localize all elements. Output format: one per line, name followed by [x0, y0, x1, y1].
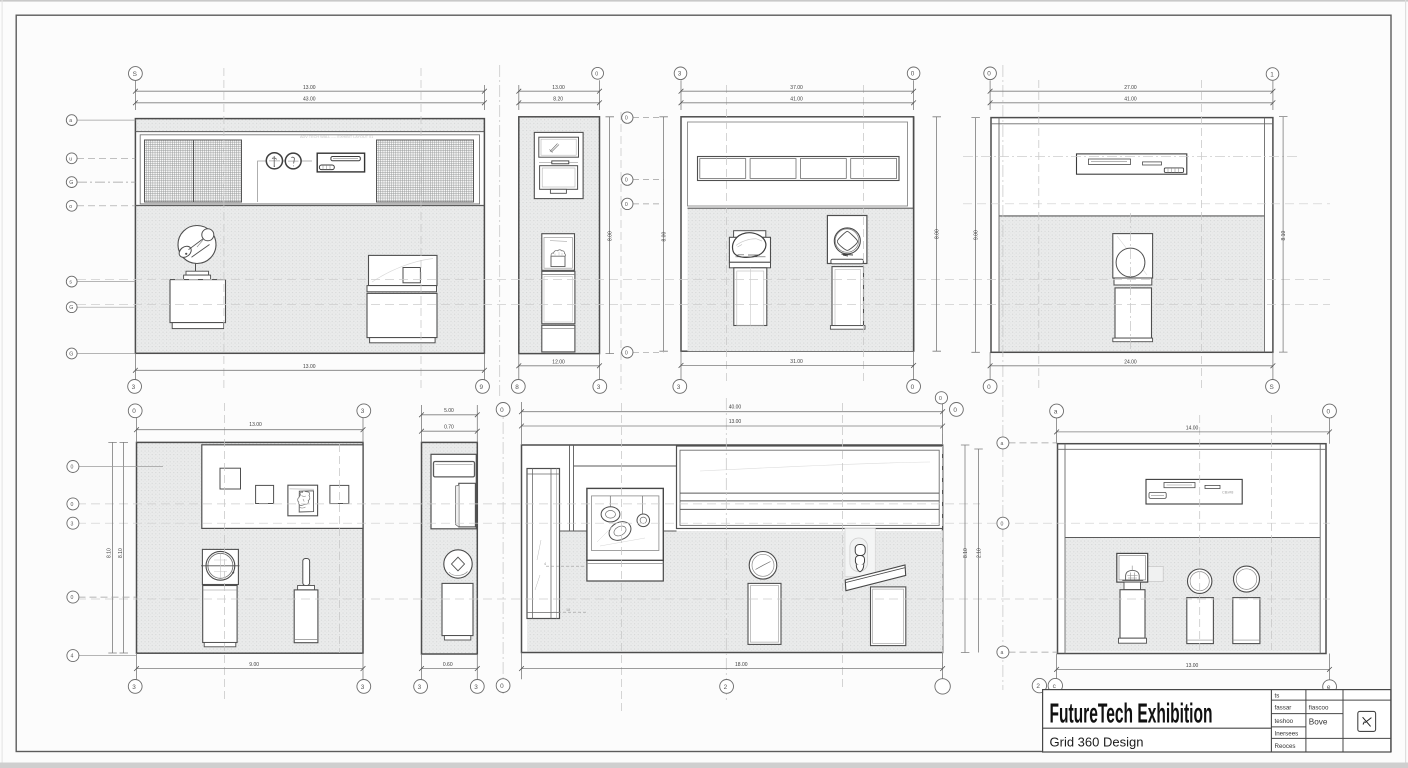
svg-text:0: 0 [625, 116, 628, 122]
svg-text:0: 0 [1001, 521, 1004, 527]
svg-text:G: G [69, 180, 73, 186]
svg-text:ts: ts [1275, 692, 1280, 699]
svg-text:0: 0 [71, 595, 74, 601]
svg-text:13.00: 13.00 [303, 85, 316, 91]
svg-text:o: o [69, 204, 72, 210]
svg-text:a: a [1001, 650, 1004, 656]
svg-text:fiascoo: fiascoo [1309, 705, 1329, 712]
svg-text:3: 3 [361, 684, 365, 691]
svg-text:CBx#8: CBx#8 [1222, 491, 1233, 495]
svg-text:27.00: 27.00 [1124, 85, 1137, 91]
svg-text:12.00: 12.00 [552, 359, 565, 365]
svg-text:0: 0 [625, 178, 628, 184]
svg-text:8: 8 [515, 384, 519, 391]
svg-text:teshoo: teshoo [1275, 718, 1294, 725]
svg-text:3: 3 [677, 384, 681, 391]
svg-text:fassar: fassar [1275, 705, 1292, 712]
svg-text:41.00: 41.00 [1124, 97, 1137, 103]
svg-text:0: 0 [625, 202, 628, 208]
svg-text:0: 0 [71, 502, 74, 508]
svg-text:4: 4 [544, 562, 546, 566]
svg-text:Inersees: Inersees [1275, 731, 1299, 738]
svg-text:9.00: 9.00 [974, 230, 980, 240]
svg-text:31.00: 31.00 [790, 359, 803, 365]
svg-text:Bove: Bove [1309, 718, 1328, 727]
svg-text:0: 0 [1327, 408, 1331, 415]
svg-text:G: G [69, 352, 73, 358]
svg-text:43.00: 43.00 [303, 97, 316, 103]
svg-text:5.00: 5.00 [444, 408, 454, 414]
svg-text:8.00: 8.00 [662, 232, 668, 242]
svg-text:2: 2 [1036, 683, 1040, 690]
svg-text:0: 0 [625, 350, 628, 356]
svg-text:3: 3 [597, 384, 601, 391]
svg-text:41.00: 41.00 [790, 97, 803, 103]
svg-text:8.10: 8.10 [963, 548, 969, 558]
svg-text:2.10: 2.10 [976, 548, 982, 558]
svg-text:a: a [69, 118, 72, 124]
svg-text:0: 0 [500, 683, 504, 690]
svg-text:u: u [69, 156, 72, 162]
svg-text:G: G [69, 305, 73, 311]
svg-text:3: 3 [678, 71, 682, 78]
svg-text:0: 0 [987, 384, 991, 391]
svg-text:Grid 360 Design: Grid 360 Design [1050, 735, 1144, 750]
svg-text:0.60: 0.60 [443, 662, 453, 668]
svg-text:37.00: 37.00 [790, 85, 803, 91]
svg-text:3: 3 [71, 521, 74, 527]
svg-text:18.00: 18.00 [735, 662, 748, 668]
svg-text:13.00: 13.00 [1186, 663, 1199, 669]
svg-text:8.10: 8.10 [118, 548, 124, 558]
svg-text:9.00: 9.00 [249, 662, 259, 668]
svg-text:3: 3 [361, 408, 365, 415]
svg-text:S: S [133, 71, 137, 78]
svg-text:3: 3 [132, 684, 136, 691]
svg-text:8.00: 8.00 [608, 231, 614, 241]
svg-text:0: 0 [987, 71, 991, 78]
svg-text:2: 2 [724, 684, 728, 691]
svg-text:8.10: 8.10 [1281, 231, 1287, 241]
svg-text:3: 3 [132, 384, 136, 391]
svg-text:3: 3 [418, 684, 422, 691]
svg-text:0: 0 [911, 384, 915, 391]
svg-text:FutureTech Exhibition: FutureTech Exhibition [1050, 698, 1213, 729]
svg-text:18: 18 [566, 608, 570, 612]
svg-text:40.00: 40.00 [729, 404, 742, 410]
svg-text:0: 0 [939, 396, 942, 402]
svg-text:9: 9 [480, 384, 484, 391]
svg-text:3: 3 [474, 684, 478, 691]
svg-text:0.70: 0.70 [444, 424, 454, 430]
svg-text:0: 0 [500, 407, 504, 414]
svg-text:8.10: 8.10 [107, 548, 113, 558]
svg-text:a: a [1001, 441, 1004, 447]
svg-text:4: 4 [71, 654, 74, 660]
svg-text:13.00: 13.00 [303, 364, 316, 370]
svg-text:13.00: 13.00 [552, 85, 565, 91]
svg-text:ADV TECH WALL ---- EXHIBIT L: ADV TECH WALL ---- EXHIBIT LAYOUT 01 [300, 135, 373, 139]
svg-text:S: S [1270, 384, 1274, 391]
svg-text:8.20: 8.20 [553, 97, 563, 103]
svg-text:24.00: 24.00 [1124, 359, 1137, 365]
svg-text:1: 1 [1270, 71, 1274, 78]
svg-text:a: a [1054, 408, 1058, 415]
svg-text:0: 0 [953, 407, 957, 414]
svg-text:0: 0 [595, 71, 598, 77]
svg-text:8.00: 8.00 [935, 229, 941, 239]
svg-text:14.00: 14.00 [1186, 425, 1199, 431]
svg-text:0: 0 [71, 465, 74, 471]
svg-text:s: s [69, 280, 72, 286]
svg-text:0: 0 [132, 408, 136, 415]
svg-text:Reoces: Reoces [1275, 743, 1296, 750]
svg-text:13.00: 13.00 [729, 419, 742, 425]
svg-text:0: 0 [911, 71, 915, 78]
svg-text:13.00: 13.00 [249, 422, 262, 428]
